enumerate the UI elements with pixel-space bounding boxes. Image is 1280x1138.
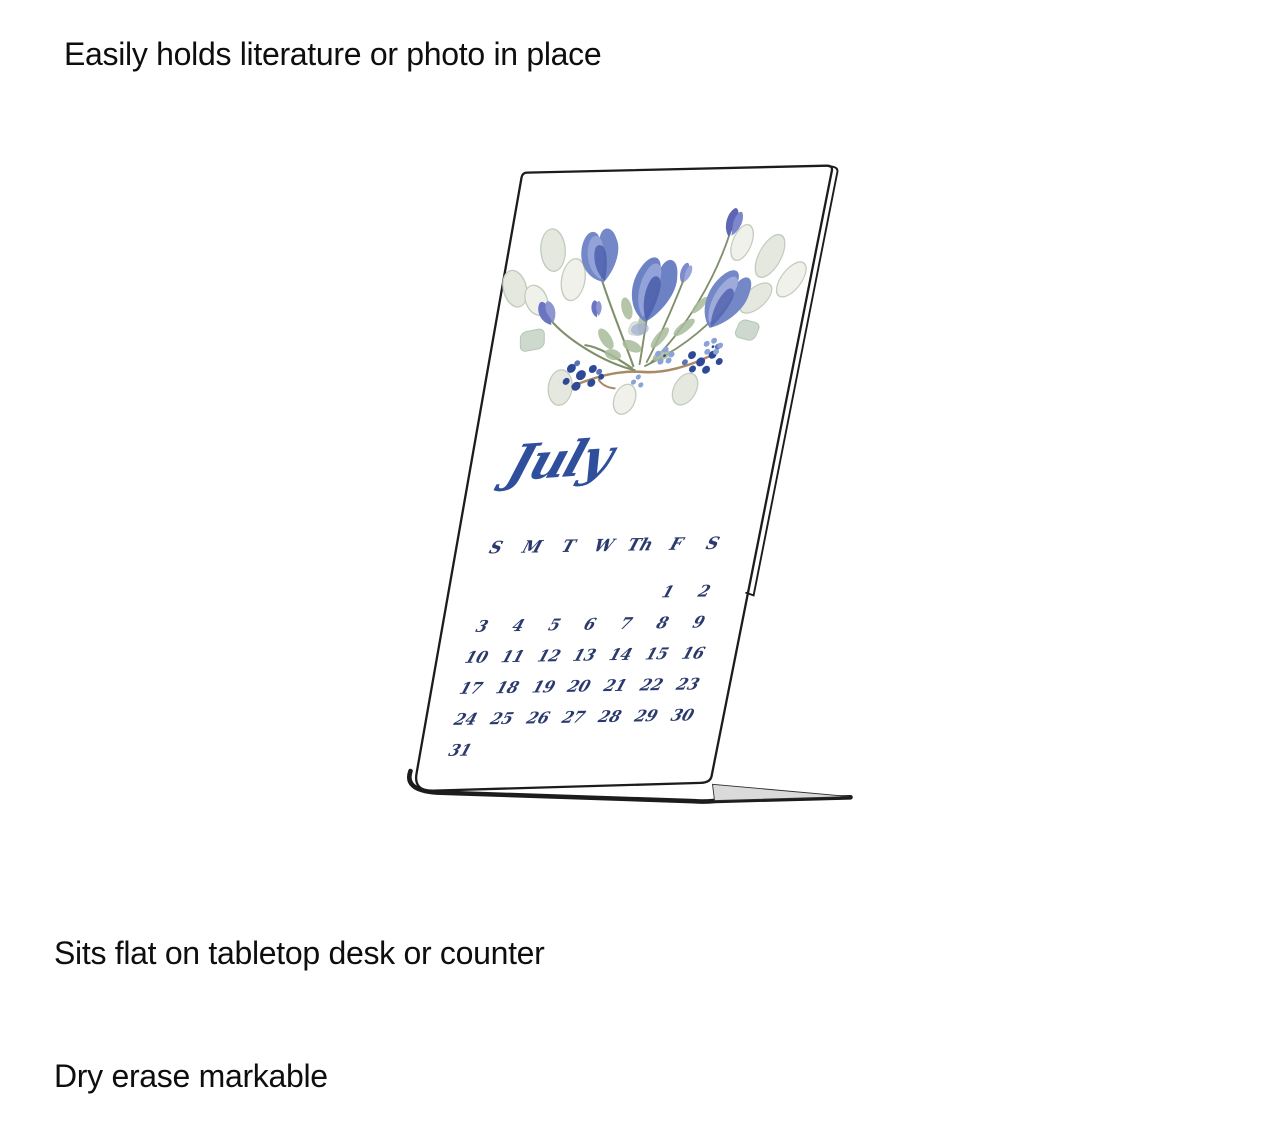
day-number: 4 <box>510 616 527 635</box>
day-number: 9 <box>690 612 707 631</box>
bottom-caption-line1: Sits flat on tabletop desk or counter <box>54 933 545 974</box>
day-number: 15 <box>643 644 671 663</box>
bottom-caption: Sits flat on tabletop desk or counter Dr… <box>54 851 545 1138</box>
day-number: 17 <box>457 678 485 697</box>
day-number: 8 <box>654 613 671 632</box>
day-number: 16 <box>679 643 707 662</box>
day-number: 18 <box>493 678 521 697</box>
day-number: 3 <box>474 617 491 636</box>
day-number: 11 <box>499 647 527 666</box>
day-number: 25 <box>488 709 516 728</box>
day-number: 19 <box>529 677 557 696</box>
day-number: 12 <box>535 646 563 665</box>
day-number: 5 <box>546 615 563 634</box>
day-number: 28 <box>596 707 624 726</box>
day-number: 27 <box>560 707 588 726</box>
day-number: 21 <box>602 676 630 695</box>
day-number: 7 <box>618 614 635 633</box>
day-number: 1 <box>659 582 676 601</box>
day-number: 13 <box>571 645 599 664</box>
day-number: 20 <box>565 676 593 695</box>
day-number: 6 <box>582 614 599 633</box>
day-number: 26 <box>524 708 552 727</box>
day-number: 24 <box>452 709 480 728</box>
bottom-caption-line2: Dry erase markable <box>54 1056 545 1097</box>
day-number: 31 <box>446 740 474 759</box>
day-number: 30 <box>668 705 696 724</box>
day-number: 14 <box>607 645 635 664</box>
day-number: 29 <box>632 706 660 725</box>
day-number: 2 <box>696 581 713 600</box>
product-image-page: { "product_labels": { "top_caption": "Ea… <box>0 0 1280 960</box>
day-number: 23 <box>674 674 702 693</box>
day-number: 22 <box>638 675 666 694</box>
day-number: 10 <box>463 647 491 666</box>
